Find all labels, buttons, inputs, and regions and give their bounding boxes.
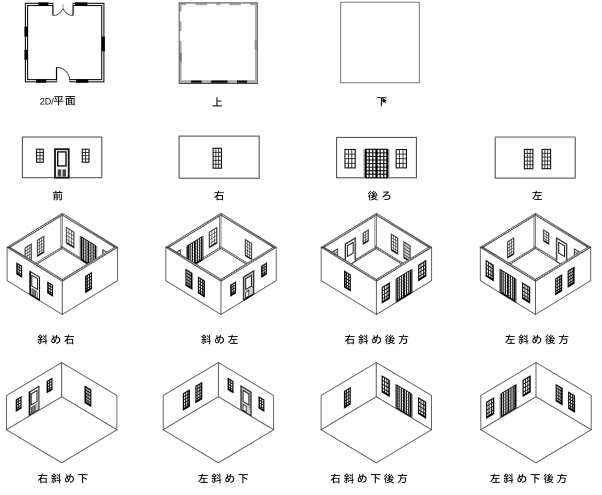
svg-text:2D/: 2D/	[40, 97, 55, 107]
